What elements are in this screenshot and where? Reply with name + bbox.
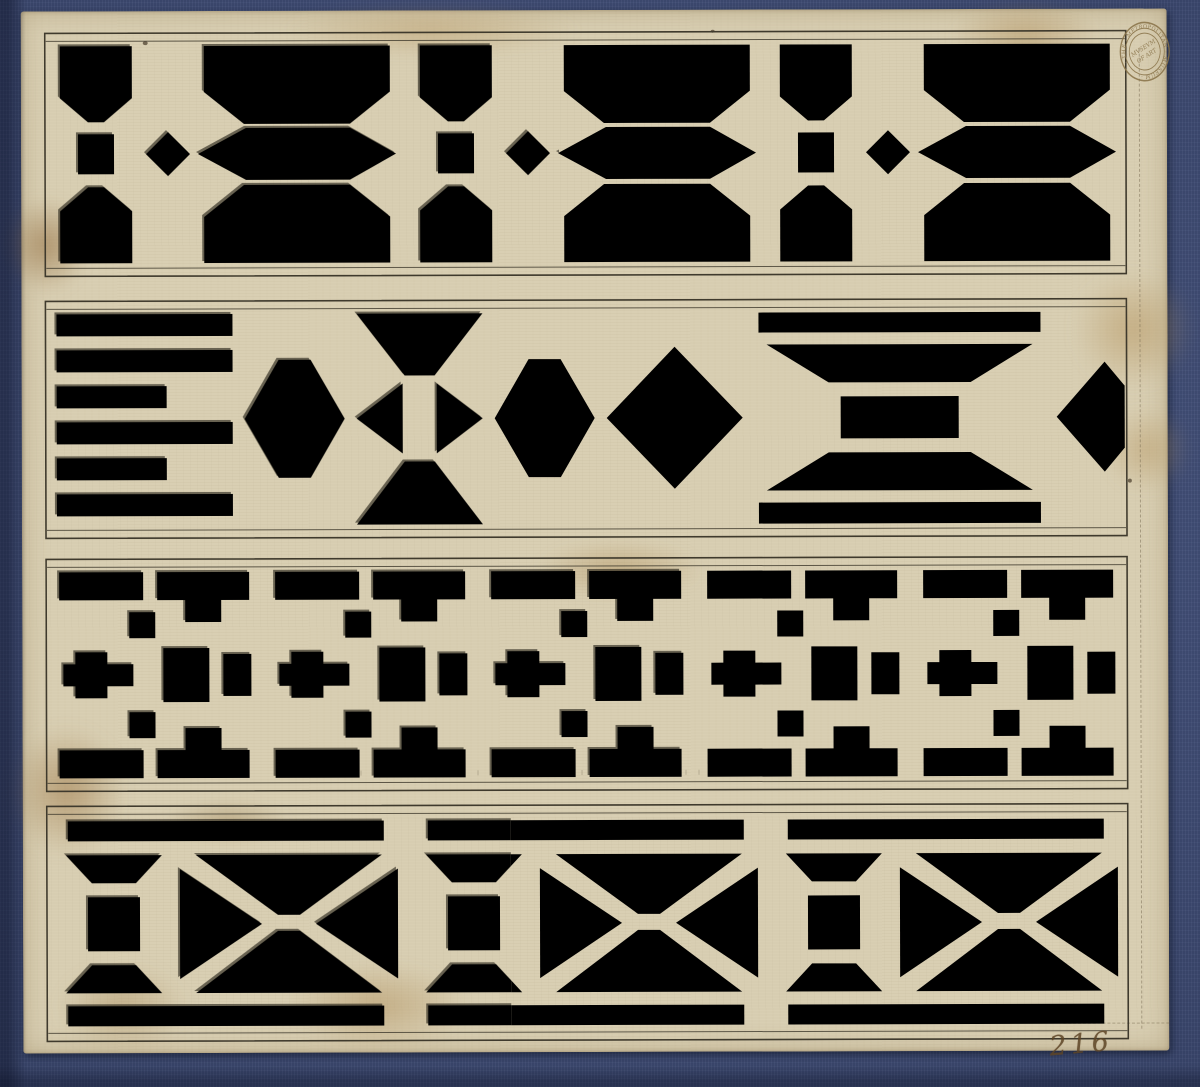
ink-speck xyxy=(1128,479,1132,483)
museum-stamp: · THE · METROPOLITAN · MUSEUM · MVSEVM O… xyxy=(1119,20,1171,82)
lattice-drawing-4 xyxy=(46,803,1130,1043)
pattern-band-4 xyxy=(46,803,1130,1043)
pattern-band-3 xyxy=(45,556,1129,793)
lattice-drawing-3 xyxy=(45,556,1129,793)
stamp-graphic: · THE · METROPOLITAN · MUSEUM · MVSEVM O… xyxy=(1119,20,1171,82)
lattice-drawing-2 xyxy=(44,298,1128,540)
artwork-scan: · THE · METROPOLITAN · MUSEUM · MVSEVM O… xyxy=(0,0,1200,1087)
paper-sheet: · THE · METROPOLITAN · MUSEUM · MVSEVM O… xyxy=(21,9,1170,1054)
inscription-number: 216 xyxy=(1048,1026,1114,1063)
pattern-band-1 xyxy=(44,30,1128,278)
lattice-drawing-1 xyxy=(44,30,1128,278)
pattern-band-2 xyxy=(44,298,1128,540)
construction-line xyxy=(1139,49,1143,1029)
